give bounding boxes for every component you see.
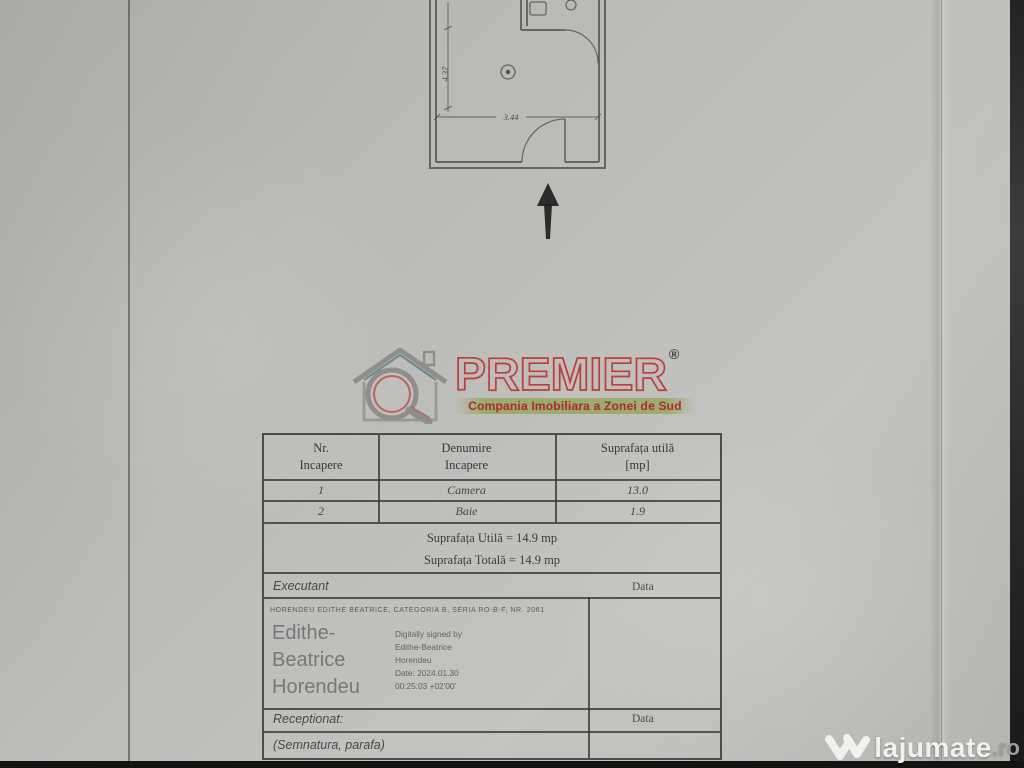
receptionat-data-label: Data: [632, 713, 654, 725]
paper-fold-line: [941, 0, 942, 762]
house-magnifier-icon: [348, 342, 452, 424]
table-line: [264, 572, 720, 574]
sink-fixture: [530, 2, 546, 15]
digital-signature-details: Digitally signed by Edithe-Beatrice Hore…: [395, 628, 462, 693]
row1-area: 13.0: [555, 483, 720, 498]
svg-text:PREMIER: PREMIER: [455, 348, 667, 400]
lajumate-logo-icon: [823, 732, 871, 764]
header-denumire-incapere: DenumireIncapere: [378, 440, 555, 474]
document-photo: 4.37 3.44 PREMIER ® Compania: [0, 0, 1024, 768]
table-line: [264, 597, 720, 599]
table-line: [264, 708, 720, 710]
summary-suprafata-utila: Suprafața Utilă = 14.9 mp: [264, 531, 720, 546]
executant-label: Executant: [273, 579, 329, 593]
photo-edge-right: [1010, 0, 1024, 768]
entrance-door-arc: [522, 119, 565, 162]
summary-suprafata-totala: Suprafața Totală = 14.9 mp: [264, 553, 720, 568]
watermark-brand: lajumate: [874, 732, 992, 764]
table-line: [264, 731, 720, 733]
dimension-label-height: 4.37: [440, 66, 450, 82]
bathroom-door-arc: [565, 30, 598, 63]
surveyor-certification-line: HORENDEU EDITHE BEATRICE, CATEGORIA B, S…: [270, 607, 590, 614]
registered-trademark-symbol: ®: [669, 346, 679, 362]
row1-nr: 1: [264, 483, 378, 498]
executant-data-label: Data: [632, 581, 654, 593]
table-line: [588, 597, 590, 758]
logo-tagline: Compania Imobiliara a Zonei de Sud: [455, 398, 695, 414]
paper-sheet: 4.37 3.44 PREMIER ® Compania: [0, 0, 1010, 762]
round-fixture: [566, 0, 576, 10]
table-line: [264, 479, 720, 481]
paper-fold-crease: [930, 0, 950, 762]
signature-name: Edithe- Beatrice Horendeu: [272, 620, 360, 701]
header-suprafata-utila: Suprafața utilă[mp]: [555, 440, 720, 474]
row2-nr: 2: [264, 504, 378, 519]
lamp-center: [506, 70, 510, 74]
dimension-label-width: 3.44: [503, 112, 520, 122]
watermark-tld: .ro: [992, 735, 1020, 761]
lajumate-watermark: lajumate .ro: [823, 732, 1020, 764]
row2-area: 1.9: [555, 504, 720, 519]
premier-wordmark: PREMIER: [453, 346, 683, 401]
floor-plan-drawing: 4.37 3.44: [426, 0, 608, 172]
row1-name: Camera: [378, 483, 555, 498]
north-arrow-icon: [527, 181, 569, 241]
vertical-dimension-line: [444, 2, 452, 112]
row2-name: Baie: [378, 504, 555, 519]
semnatura-parafa-label: (Semnatura, parafa): [273, 738, 385, 752]
premier-logo: PREMIER ® Compania Imobiliara a Zonei de…: [345, 338, 695, 424]
document-frame-line: [128, 0, 130, 762]
header-nr-incapere: Nr.Incapere: [264, 440, 378, 474]
outer-walls: [430, 0, 605, 168]
receptionat-label: Receptionat:: [273, 712, 343, 726]
room-area-table: Nr.Incapere DenumireIncapere Suprafața u…: [262, 433, 722, 760]
table-line: [264, 522, 720, 524]
table-line: [264, 500, 720, 502]
